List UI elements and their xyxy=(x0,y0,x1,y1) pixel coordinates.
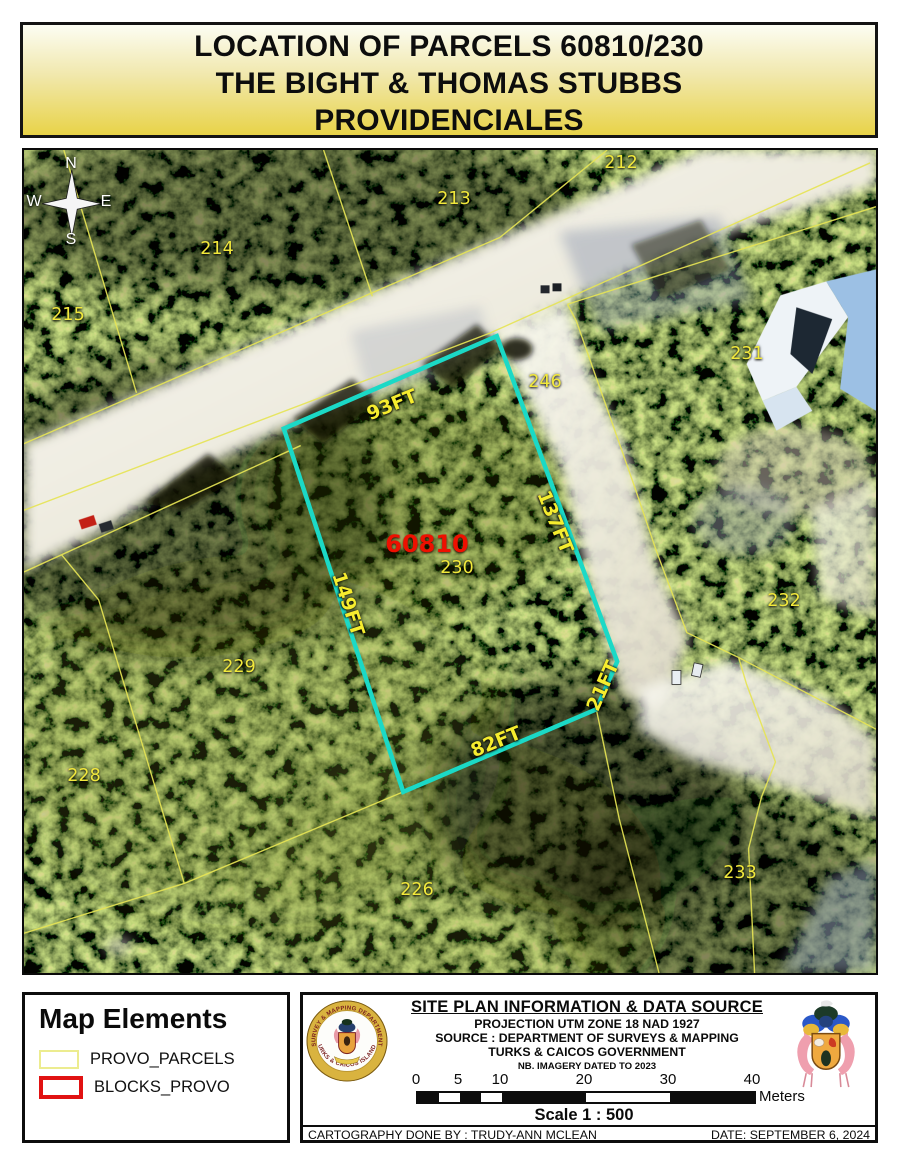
title-line-1: LOCATION OF PARCELS 60810/230 xyxy=(23,28,875,65)
parcel-label-229: 229 xyxy=(222,657,255,677)
highlight-parcel-number: 60810 xyxy=(385,530,469,558)
parcel-label-246: 246 xyxy=(528,372,561,392)
parcel-label-212: 212 xyxy=(604,153,637,173)
map-area: N E S W 212 213 214 215 231 246 232 229 … xyxy=(22,148,878,975)
parcel-label-213: 213 xyxy=(437,189,470,209)
parcel-label-226: 226 xyxy=(400,880,433,900)
scalebar-tick-20: 20 xyxy=(576,1071,593,1088)
info-government: TURKS & CAICOS GOVERNMENT xyxy=(393,1045,781,1059)
title-banner: LOCATION OF PARCELS 60810/230 THE BIGHT … xyxy=(20,22,878,138)
compass-south-label: S xyxy=(66,231,77,249)
scalebar-tick-40: 40 xyxy=(744,1071,761,1088)
parcel-label-233: 233 xyxy=(723,863,756,883)
provo-parcels-swatch xyxy=(39,1050,79,1069)
info-panel: SURVEY & MAPPING DEPARTMENT TURKS & CAIC… xyxy=(300,992,878,1143)
legend-label: PROVO_PARCELS xyxy=(90,1050,235,1069)
info-text-block: SITE PLAN INFORMATION & DATA SOURCE PROJ… xyxy=(393,998,781,1072)
footer-divider xyxy=(303,1125,875,1127)
parcel-label-232: 232 xyxy=(767,591,800,611)
title-line-2: THE BIGHT & THOMAS STUBBS xyxy=(23,65,875,102)
legend-title: Map Elements xyxy=(39,1003,227,1035)
legend-label: BLOCKS_PROVO xyxy=(94,1078,230,1097)
scalebar xyxy=(416,1091,756,1104)
scalebar-unit: Meters xyxy=(759,1088,805,1105)
parcel-label-228: 228 xyxy=(67,766,100,786)
compass-east-label: E xyxy=(101,193,112,211)
date-label: DATE: SEPTEMBER 6, 2024 xyxy=(711,1128,870,1142)
title-line-3: PROVIDENCIALES xyxy=(23,102,875,139)
compass-west-label: W xyxy=(26,193,41,211)
legend-panel: Map Elements PROVO_PARCELS BLOCKS_PROVO xyxy=(22,992,290,1143)
cartography-credit: CARTOGRAPHY DONE BY : TRUDY-ANN MCLEAN xyxy=(308,1128,597,1142)
parcel-label-214: 214 xyxy=(200,239,233,259)
scalebar-tick-5: 5 xyxy=(454,1071,462,1088)
scalebar-tick-10: 10 xyxy=(492,1071,509,1088)
parcel-label-215: 215 xyxy=(51,305,84,325)
info-source: SOURCE : DEPARTMENT OF SURVEYS & MAPPING xyxy=(393,1031,781,1045)
info-projection: PROJECTION UTM ZONE 18 NAD 1927 xyxy=(393,1017,781,1031)
info-heading: SITE PLAN INFORMATION & DATA SOURCE xyxy=(393,998,781,1017)
site-plan-document: LOCATION OF PARCELS 60810/230 THE BIGHT … xyxy=(0,0,900,1165)
legend-item-provo-parcels: PROVO_PARCELS xyxy=(39,1050,235,1069)
legend-item-blocks-provo: BLOCKS_PROVO xyxy=(39,1076,230,1099)
compass-north-label: N xyxy=(65,155,77,173)
scalebar-tick-30: 30 xyxy=(660,1071,677,1088)
turks-caicos-coat-of-arms xyxy=(780,996,872,1090)
parcel-label-231: 231 xyxy=(730,344,763,364)
scalebar-tick-0: 0 xyxy=(412,1071,420,1088)
scale-ratio-text: Scale 1 : 500 xyxy=(416,1106,752,1125)
blocks-provo-swatch xyxy=(39,1076,83,1099)
survey-mapping-seal: SURVEY & MAPPING DEPARTMENT TURKS & CAIC… xyxy=(305,999,389,1083)
highlight-block-number: 230 xyxy=(440,558,473,578)
